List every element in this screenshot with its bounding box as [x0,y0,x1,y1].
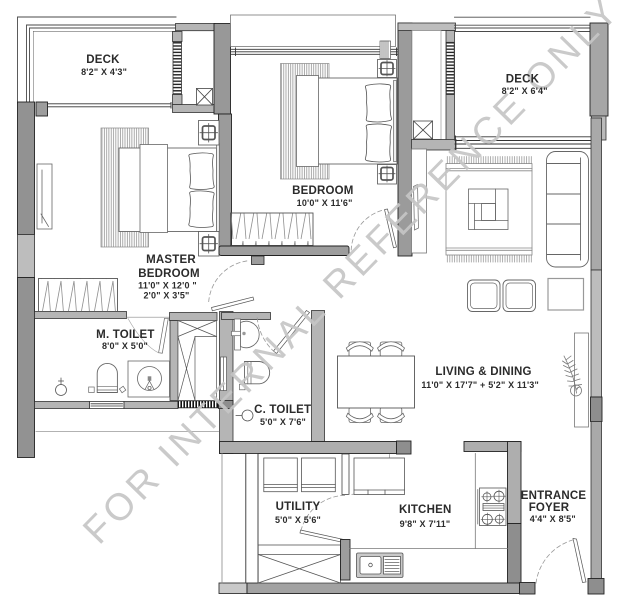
svg-text:4'4" X 8'5": 4'4" X 8'5" [530,514,576,524]
svg-text:MASTER: MASTER [146,254,196,266]
svg-text:FOYER: FOYER [529,502,570,514]
svg-text:8'2" X 4'3": 8'2" X 4'3" [81,67,127,77]
svg-text:DECK: DECK [506,74,540,86]
svg-text:ENTRANCE: ENTRANCE [521,490,587,502]
svg-text:C. TOILET: C. TOILET [254,404,311,416]
svg-text:BEDROOM: BEDROOM [138,268,199,280]
svg-text:5'0" X 7'6": 5'0" X 7'6" [260,417,306,427]
svg-text:11'0" X 17'7" + 5'2" X 11'3": 11'0" X 17'7" + 5'2" X 11'3" [421,380,539,390]
svg-text:2'0" X 3'5": 2'0" X 3'5" [143,291,189,301]
svg-text:M. TOILET: M. TOILET [96,329,154,341]
svg-text:10'0" X 11'6": 10'0" X 11'6" [297,198,353,208]
svg-text:UTILITY: UTILITY [276,501,321,513]
svg-text:8'0" X 5'0": 8'0" X 5'0" [102,341,148,351]
svg-text:5'0" X 5'6": 5'0" X 5'6" [275,515,321,525]
svg-text:11'0" X 12'0 ": 11'0" X 12'0 " [138,281,197,291]
svg-text:LIVING & DINING: LIVING & DINING [435,366,531,378]
svg-text:BEDROOM: BEDROOM [292,185,353,197]
svg-text:9'8" X 7'11": 9'8" X 7'11" [400,519,451,529]
svg-text:8'2" X 6'4": 8'2" X 6'4" [502,86,548,96]
svg-text:DECK: DECK [86,54,120,66]
svg-text:KITCHEN: KITCHEN [399,504,452,516]
